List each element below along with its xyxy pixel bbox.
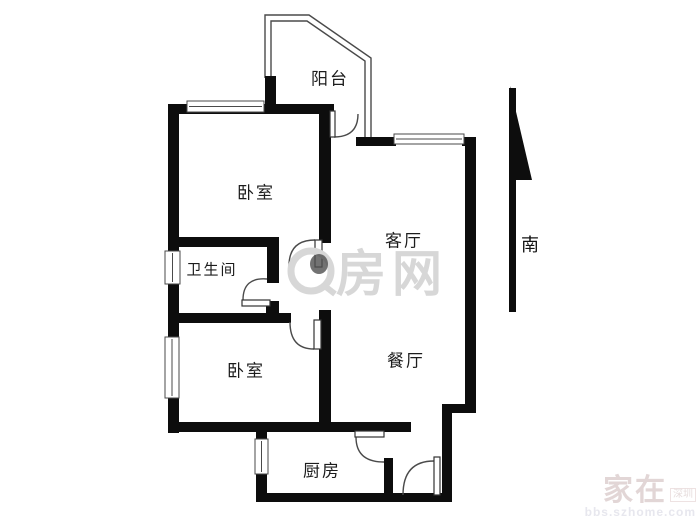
- balcony-door-leaf: [330, 111, 335, 137]
- wall-exterior-right: [465, 137, 476, 407]
- balcony-door-arc: [334, 114, 358, 137]
- watermark-q-dot: [310, 254, 328, 274]
- entrance-door-arc: [403, 461, 434, 495]
- center-watermark: 房网: [291, 246, 448, 302]
- bedroom-south-door-arc: [290, 322, 314, 349]
- kitchen-door-arc: [356, 437, 384, 462]
- floor-plan: 房网 阳台卧室卫生间客厅卧室餐厅厨房 南 家在 深圳 bbs.szhome.co…: [0, 0, 700, 525]
- floor-plan-canvas: 房网: [0, 0, 700, 525]
- wall-entrance-right: [442, 405, 452, 502]
- wall-bottom: [256, 493, 452, 502]
- wall-bathroom-right-upper: [267, 237, 279, 283]
- corner-watermark-badge: 深圳: [670, 488, 696, 503]
- corner-watermark: 家在 深圳 bbs.szhome.com: [585, 475, 696, 519]
- south-arrow-head: [510, 86, 532, 180]
- wall-living-left: [319, 104, 331, 243]
- wall-living-top-left: [356, 137, 396, 146]
- corner-watermark-title: 家在: [603, 475, 667, 507]
- watermark-text: 房网: [336, 246, 448, 302]
- wall-bedroom-south-top: [168, 313, 291, 323]
- balcony-railing-outer: [265, 15, 371, 138]
- corner-watermark-subtitle: bbs.szhome.com: [585, 506, 696, 519]
- kitchen-door-leaf: [355, 431, 384, 437]
- bedroom-south-door-leaf: [314, 320, 321, 349]
- south-arrow: [509, 86, 532, 312]
- entrance-door-leaf: [434, 457, 440, 495]
- balcony-railing: [265, 15, 371, 138]
- bathroom-door-arc: [243, 279, 267, 300]
- south-label: 南: [521, 231, 539, 257]
- bathroom-door-leaf: [242, 300, 270, 306]
- balcony-railing-inner: [271, 21, 365, 138]
- wall-kitchen-right: [384, 458, 393, 495]
- watermark-q-tail: [326, 287, 335, 294]
- wall-bedroom-north-bottom: [168, 237, 278, 247]
- wall-balcony-left: [265, 76, 276, 106]
